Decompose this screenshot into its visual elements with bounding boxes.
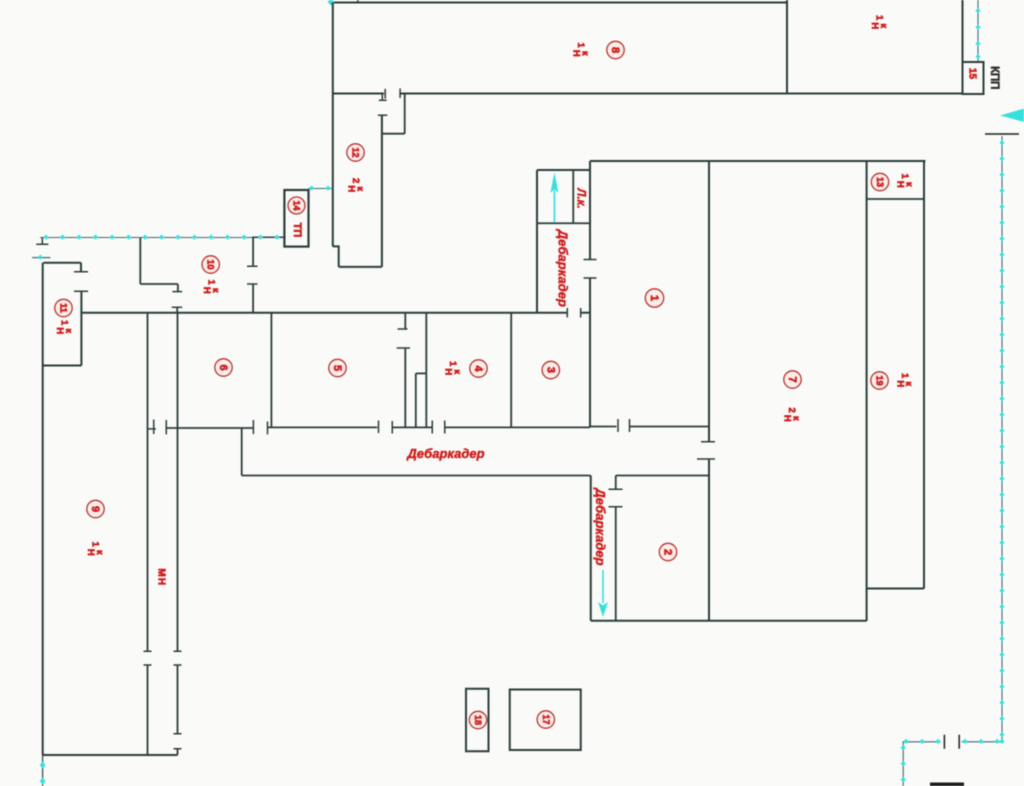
svg-text:1: 1 — [874, 15, 885, 21]
svg-text:Дебаркадер: Дебаркадер — [556, 229, 571, 307]
svg-text:10: 10 — [206, 259, 216, 269]
svg-text:19: 19 — [875, 375, 885, 385]
svg-text:к: к — [451, 369, 462, 374]
svg-text:4: 4 — [472, 365, 484, 372]
svg-text:1: 1 — [206, 280, 217, 286]
svg-text:8: 8 — [609, 47, 621, 53]
svg-text:6: 6 — [217, 364, 229, 370]
svg-text:Дебаркадер: Дебаркадер — [593, 487, 608, 565]
svg-text:ТП: ТП — [291, 223, 303, 238]
svg-text:1: 1 — [90, 542, 101, 548]
svg-text:3: 3 — [544, 367, 556, 373]
svg-text:М: М — [156, 568, 167, 576]
svg-text:12: 12 — [351, 147, 361, 157]
svg-text:к: к — [354, 186, 365, 191]
svg-text:к: к — [94, 550, 105, 555]
svg-text:к: к — [878, 23, 889, 28]
svg-text:КПП: КПП — [988, 66, 1002, 89]
svg-text:1: 1 — [575, 43, 586, 49]
svg-text:1: 1 — [899, 174, 910, 180]
svg-text:Н: Н — [156, 578, 167, 585]
svg-text:5: 5 — [331, 365, 343, 371]
svg-text:2: 2 — [786, 408, 797, 413]
svg-text:17: 17 — [541, 714, 551, 724]
svg-text:18: 18 — [473, 715, 483, 725]
svg-text:к: к — [579, 51, 590, 56]
svg-text:Дебаркадер: Дебаркадер — [406, 446, 484, 461]
svg-text:Л.к.: Л.к. — [574, 188, 586, 209]
svg-text:к: к — [790, 416, 801, 421]
svg-text:7: 7 — [786, 376, 798, 382]
svg-text:к: к — [210, 288, 221, 293]
svg-text:9: 9 — [89, 506, 101, 512]
svg-text:1: 1 — [899, 373, 910, 379]
svg-text:11: 11 — [59, 303, 69, 313]
svg-text:1: 1 — [648, 295, 660, 301]
svg-text:к: к — [903, 182, 914, 187]
svg-text:13: 13 — [875, 177, 885, 187]
svg-text:2: 2 — [662, 549, 674, 555]
svg-text:1: 1 — [59, 320, 70, 326]
svg-text:2: 2 — [350, 178, 361, 183]
svg-text:к: к — [903, 381, 914, 386]
svg-text:1: 1 — [447, 361, 458, 367]
svg-text:14: 14 — [292, 200, 302, 210]
svg-text:к: к — [63, 328, 74, 333]
svg-text:15: 15 — [966, 68, 977, 80]
